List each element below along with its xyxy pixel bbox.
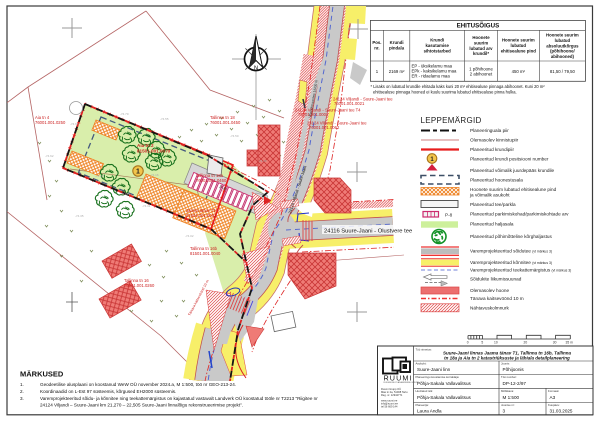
svg-text:-74.50: -74.50 — [230, 134, 239, 138]
svg-text:Töö nimetus:: Töö nimetus: — [416, 348, 432, 352]
svg-text:Põhijoonis: Põhijoonis — [503, 367, 525, 372]
svg-text:lubatud: lubatud — [555, 38, 571, 43]
svg-text:Mõõtkava:: Mõõtkava: — [501, 389, 514, 393]
svg-text:Joonis:: Joonis: — [501, 362, 510, 366]
svg-text:Laura Andla: Laura Andla — [417, 409, 442, 414]
svg-text:Sõidukite liikumissuunad: Sõidukite liikumissuunad — [470, 277, 522, 282]
svg-text:ja võimalik asukoht: ja võimalik asukoht — [469, 192, 510, 197]
svg-text:lubatud arv: lubatud arv — [469, 46, 493, 51]
svg-text:3: 3 — [503, 409, 506, 414]
svg-text:76001.001.0250: 76001.001.0250 — [35, 120, 66, 125]
svg-text:81501.001.0040: 81501.001.0040 — [190, 251, 221, 256]
svg-text:Kuupäev:: Kuupäev: — [548, 403, 560, 407]
svg-text:krundil*: krundil* — [473, 51, 489, 56]
svg-text:5: 5 — [481, 341, 483, 345]
svg-text:24124 Viljandi – Suure-Jaani k: 24124 Viljandi – Suure-Jaani km 21,270 –… — [40, 403, 243, 408]
svg-text:Planeeritud hoonestusala: Planeeritud hoonestusala — [470, 177, 523, 182]
svg-text:24116 Suure-Jaani - Olustvere: 24116 Suure-Jaani - Olustvere tee — [324, 229, 412, 235]
svg-text:N: N — [254, 66, 258, 72]
svg-text:Hoonete suurim: Hoonete suurim — [502, 38, 535, 43]
svg-text:Planeeritud haljasala: Planeeritud haljasala — [470, 221, 514, 226]
svg-text:-74.08: -74.08 — [120, 192, 129, 196]
svg-text:Koordinaadid on L-Est 97 süste: Koordinaadid on L-Est 97 süsteemis, kõrg… — [40, 389, 176, 394]
svg-text:Planeerija:: Planeerija: — [416, 403, 429, 407]
svg-text:kasutamise: kasutamise — [425, 43, 449, 48]
svg-text:A3: A3 — [550, 395, 556, 400]
svg-text:MÄRKUSED: MÄRKUSED — [20, 370, 64, 379]
svg-text:Planeeritud võimalik juurdepää: Planeeritud võimalik juurdepääs krundile — [470, 168, 555, 173]
svg-text:81501.001.0063: 81501.001.0063 — [186, 213, 217, 218]
svg-text:Nähtavuskolmnurk: Nähtavuskolmnurk — [470, 305, 509, 310]
svg-text:Põhja-Sakala Vallavalitsus: Põhja-Sakala Vallavalitsus — [417, 381, 471, 386]
svg-text:Reg. nr. 12942771: Reg. nr. 12942771 — [381, 393, 403, 397]
svg-text:76001.001.0021: 76001.001.0021 — [334, 101, 365, 106]
svg-text:76001.001.0260: 76001.001.0260 — [124, 283, 155, 288]
svg-text:-74.35: -74.35 — [75, 214, 84, 218]
svg-text:RUUMILISE PLANEERIMISE GRUPP: RUUMILISE PLANEERIMISE GRUPP — [384, 381, 420, 384]
svg-text:Planeeringu koostamise korrald: Planeeringu koostamise korraldaja: — [416, 375, 460, 379]
svg-text:20: 20 — [524, 341, 528, 345]
svg-text:-74.62: -74.62 — [45, 154, 54, 158]
svg-text:Formaat:: Formaat: — [548, 389, 559, 393]
svg-text:Töö number:: Töö number: — [501, 375, 517, 379]
svg-text:DP-12-2/97: DP-12-2/97 — [503, 381, 527, 386]
svg-text:Hoonete suurim lubatud ehitise: Hoonete suurim lubatud ehitisealune pind — [470, 187, 557, 192]
svg-text:2.: 2. — [20, 389, 24, 394]
svg-text:Planeeritud tee/parkla: Planeeritud tee/parkla — [470, 202, 516, 207]
svg-text:Suure-Jaani linn: Suure-Jaani linn — [417, 367, 451, 372]
svg-text:3.: 3. — [20, 396, 24, 401]
svg-text:81501.001.0070: 81501.001.0070 — [137, 149, 171, 154]
svg-text:Pos.: Pos. — [372, 40, 381, 45]
svg-text:sihtotstarbed: sihtotstarbed — [424, 48, 452, 53]
svg-text:2 abihoonet: 2 abihoonet — [470, 72, 493, 77]
svg-text:Krundi: Krundi — [430, 38, 444, 43]
svg-text:P-8: P-8 — [445, 212, 453, 217]
svg-text:pindala: pindala — [389, 45, 405, 50]
svg-text:Planeeritud krundipiir: Planeeritud krundipiir — [470, 147, 514, 152]
svg-text:Planeeritud krundi positsiooni: Planeeritud krundi positsiooni number — [470, 156, 549, 161]
svg-text:76001.001.0001: 76001.001.0001 — [298, 112, 329, 117]
svg-text:Olemasolev kinnistupiir: Olemasolev kinnistupiir — [470, 138, 519, 143]
svg-text:Geodeetilise alusplaani on koo: Geodeetilise alusplaani on koostanud WeW… — [40, 381, 236, 387]
svg-text:Hoonete suurim: Hoonete suurim — [546, 33, 579, 38]
svg-text:Tänava kaitsevöönd 10 m: Tänava kaitsevöönd 10 m — [470, 296, 524, 301]
svg-text:450 m²: 450 m² — [512, 69, 526, 74]
svg-text:0: 0 — [467, 341, 469, 345]
svg-text:abihooned): abihooned) — [551, 54, 575, 59]
svg-text:tel 56 669 144: tel 56 669 144 — [381, 404, 398, 408]
svg-text:absoluutkõrgus: absoluutkõrgus — [546, 43, 579, 48]
svg-text:Varemprojekteeritud teekattemä: Varemprojekteeritud teekattemärgistus (v… — [470, 268, 571, 273]
svg-text:ehitisealune pind: ehitisealune pind — [501, 48, 536, 53]
svg-text:Varemprojekteeritud sõidu- ja: Varemprojekteeritud sõidu- ja kõnnitee n… — [40, 395, 318, 401]
svg-text:81,50 / 79,50: 81,50 / 79,50 — [550, 69, 576, 74]
svg-text:tn 18a ja Aia tn 2 katastriüks: tn 18a ja Aia tn 2 katastriüksuste ja lä… — [444, 356, 570, 361]
svg-text:30: 30 — [553, 341, 557, 345]
svg-text:-74.65: -74.65 — [70, 122, 79, 126]
svg-text:-74.45: -74.45 — [258, 159, 267, 163]
svg-text:EHITUSÕIGUS: EHITUSÕIGUS — [457, 23, 500, 30]
svg-text:-74.55: -74.55 — [160, 117, 169, 121]
svg-text:Planeeringuala piir: Planeeringuala piir — [470, 128, 509, 133]
svg-text:35 m: 35 m — [566, 341, 574, 345]
svg-text:Asukoht:: Asukoht: — [416, 362, 427, 366]
svg-text:76001.001.0062: 76001.001.0062 — [309, 125, 340, 130]
svg-text:1: 1 — [136, 169, 140, 176]
svg-text:Aia tn 2: Aia tn 2 — [137, 143, 154, 148]
svg-text:-74.28: -74.28 — [95, 174, 104, 178]
svg-text:RUUMI: RUUMI — [384, 374, 413, 383]
svg-text:Hoonete: Hoonete — [472, 35, 490, 40]
svg-text:-74.16: -74.16 — [150, 173, 159, 177]
svg-text:2169 m²: 2169 m² — [389, 69, 405, 74]
svg-text:Planeeritud põhimõtteline kõrg: Planeeritud põhimõtteline kõrghaljastus — [470, 234, 552, 239]
svg-text:-74.11: -74.11 — [142, 204, 151, 208]
svg-text:Olemasolev hoone: Olemasolev hoone — [470, 288, 509, 293]
svg-text:Varemprojekteeritud kõnnitee (: Varemprojekteeritud kõnnitee (vt märkus … — [470, 260, 552, 265]
svg-text:suurim: suurim — [474, 40, 489, 45]
svg-text:Põhja-Sakala Vallavalitsus: Põhja-Sakala Vallavalitsus — [417, 395, 471, 400]
svg-text:Suure-Jaani linnas Jaama tänav: Suure-Jaani linnas Jaama tänav T1, Talli… — [443, 350, 571, 355]
svg-text:1.: 1. — [20, 382, 24, 387]
svg-text:Planeeritud parkimiskohad/park: Planeeritud parkimiskohad/parkimiskohtad… — [470, 212, 569, 217]
svg-text:76001.001.0460: 76001.001.0460 — [196, 178, 227, 183]
svg-text:-74.02: -74.02 — [185, 234, 194, 238]
svg-text:LEPPEMÄRGID: LEPPEMÄRGID — [421, 116, 482, 125]
svg-text:10: 10 — [494, 341, 498, 345]
svg-text:nr.: nr. — [374, 45, 379, 50]
svg-text:-74.70: -74.70 — [120, 112, 129, 116]
svg-text:lubatud: lubatud — [511, 43, 527, 48]
svg-text:Joonise nr:: Joonise nr: — [501, 403, 515, 407]
svg-text:* Lisaks on lubatud krundile e: * Lisaks on lubatud krundile ehitada kak… — [371, 84, 546, 89]
svg-text:ehitisealuse pinnaga hooned ei: ehitisealuse pinnaga hooned ei kuulu suu… — [373, 90, 517, 95]
svg-text:(põhihoone/: (põhihoone/ — [550, 49, 575, 54]
svg-text:76001.001.0450: 76001.001.0450 — [210, 120, 241, 125]
svg-text:M 1:500: M 1:500 — [503, 395, 520, 400]
svg-text:ER - ridaelamu maa: ER - ridaelamu maa — [412, 74, 451, 79]
svg-text:Huvitatud isik:: Huvitatud isik: — [416, 389, 434, 393]
svg-text:Varemprojekteeritud sõidutee (: Varemprojekteeritud sõidutee (vt märkus … — [470, 248, 552, 253]
svg-text:Krundi: Krundi — [390, 40, 404, 45]
svg-text:31.03.2025: 31.03.2025 — [550, 409, 573, 414]
